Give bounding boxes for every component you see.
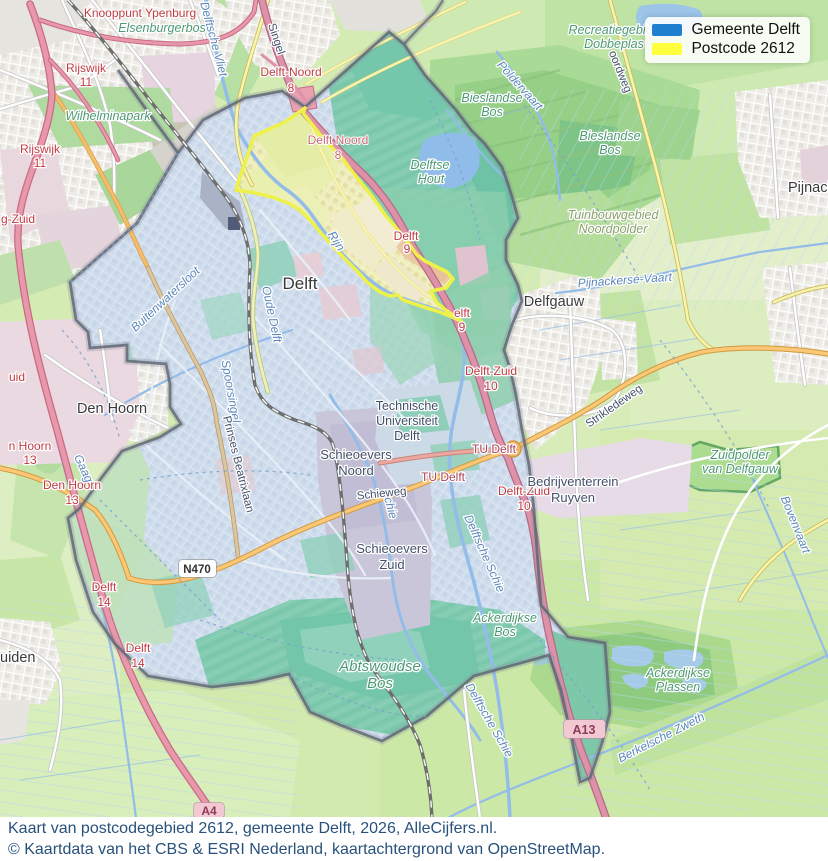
- svg-text:Wilhelminapark: Wilhelminapark: [65, 109, 151, 123]
- svg-text:Delft Noord: Delft Noord: [308, 133, 369, 147]
- svg-text:Bos: Bos: [599, 143, 621, 157]
- svg-text:TU Delft: TU Delft: [421, 470, 466, 484]
- svg-text:uid: uid: [9, 370, 25, 384]
- svg-text:10: 10: [517, 499, 531, 513]
- svg-text:Ackerdijkse: Ackerdijkse: [645, 666, 710, 680]
- svg-text:Noord: Noord: [338, 463, 373, 478]
- svg-text:10: 10: [484, 379, 498, 393]
- svg-text:Bedrijventerrein: Bedrijventerrein: [527, 474, 618, 489]
- svg-text:14: 14: [131, 656, 145, 670]
- svg-text:Delft: Delft: [394, 229, 419, 243]
- svg-text:9: 9: [404, 242, 411, 256]
- svg-text:Ruyven: Ruyven: [551, 490, 595, 505]
- svg-text:n Hoorn: n Hoorn: [9, 439, 52, 453]
- svg-text:Plassen: Plassen: [656, 680, 701, 694]
- svg-text:Delft-Noord: Delft-Noord: [260, 65, 321, 79]
- svg-text:Delft: Delft: [126, 641, 151, 655]
- svg-text:Elsenburgerbos: Elsenburgerbos: [118, 21, 206, 35]
- svg-text:Noordpolder: Noordpolder: [579, 222, 649, 236]
- svg-text:8: 8: [335, 148, 342, 162]
- svg-text:elft: elft: [454, 306, 471, 320]
- svg-text:9: 9: [459, 320, 466, 334]
- svg-text:Universiteit: Universiteit: [376, 414, 438, 428]
- svg-text:Schieoevers: Schieoevers: [320, 447, 392, 462]
- svg-text:Zuid: Zuid: [379, 557, 404, 572]
- svg-text:Ackerdijkse: Ackerdijkse: [472, 611, 537, 625]
- svg-text:Tuinbouwgebied: Tuinbouwgebied: [568, 208, 660, 222]
- svg-text:Hout: Hout: [418, 172, 445, 186]
- svg-text:Bos: Bos: [367, 675, 393, 692]
- svg-text:13: 13: [65, 493, 79, 507]
- svg-text:Delft-Zuid: Delft-Zuid: [465, 364, 517, 378]
- svg-text:uiden: uiden: [0, 650, 35, 666]
- svg-text:van Delfgauw: van Delfgauw: [702, 462, 779, 476]
- svg-text:A4: A4: [201, 804, 217, 818]
- svg-text:13: 13: [23, 453, 37, 467]
- svg-text:N470: N470: [183, 564, 211, 576]
- svg-text:g-Zuid: g-Zuid: [1, 212, 35, 226]
- svg-text:Technische: Technische: [376, 399, 439, 413]
- svg-text:Delft: Delft: [394, 429, 420, 443]
- svg-text:Pijnack: Pijnack: [788, 180, 828, 196]
- svg-text:Bieslandse: Bieslandse: [461, 91, 522, 105]
- svg-text:Bieslandse: Bieslandse: [579, 129, 640, 143]
- svg-text:Delft: Delft: [283, 274, 318, 293]
- svg-text:A13: A13: [573, 723, 596, 737]
- svg-text:Knooppunt Ypenburg: Knooppunt Ypenburg: [84, 6, 196, 20]
- svg-text:Rijswijk: Rijswijk: [66, 61, 107, 75]
- svg-text:Delft: Delft: [92, 580, 117, 594]
- svg-text:TU Delft: TU Delft: [472, 442, 517, 456]
- svg-text:Zuidpolder: Zuidpolder: [709, 448, 770, 462]
- svg-text:Rijswijk: Rijswijk: [20, 142, 61, 156]
- svg-text:11: 11: [80, 75, 93, 89]
- svg-text:11: 11: [34, 156, 47, 170]
- svg-text:Bos: Bos: [481, 105, 503, 119]
- svg-text:Dobbeplas: Dobbeplas: [584, 37, 644, 51]
- svg-text:Delftse: Delftse: [411, 158, 450, 172]
- svg-text:14: 14: [97, 595, 111, 609]
- svg-text:Bos: Bos: [494, 625, 516, 639]
- svg-text:8: 8: [288, 81, 295, 95]
- svg-text:Den Hoorn: Den Hoorn: [77, 401, 147, 417]
- svg-text:Schieoevers: Schieoevers: [356, 541, 428, 556]
- svg-text:Abtswoudse: Abtswoudse: [338, 658, 421, 675]
- svg-text:Delfgauw: Delfgauw: [524, 294, 585, 310]
